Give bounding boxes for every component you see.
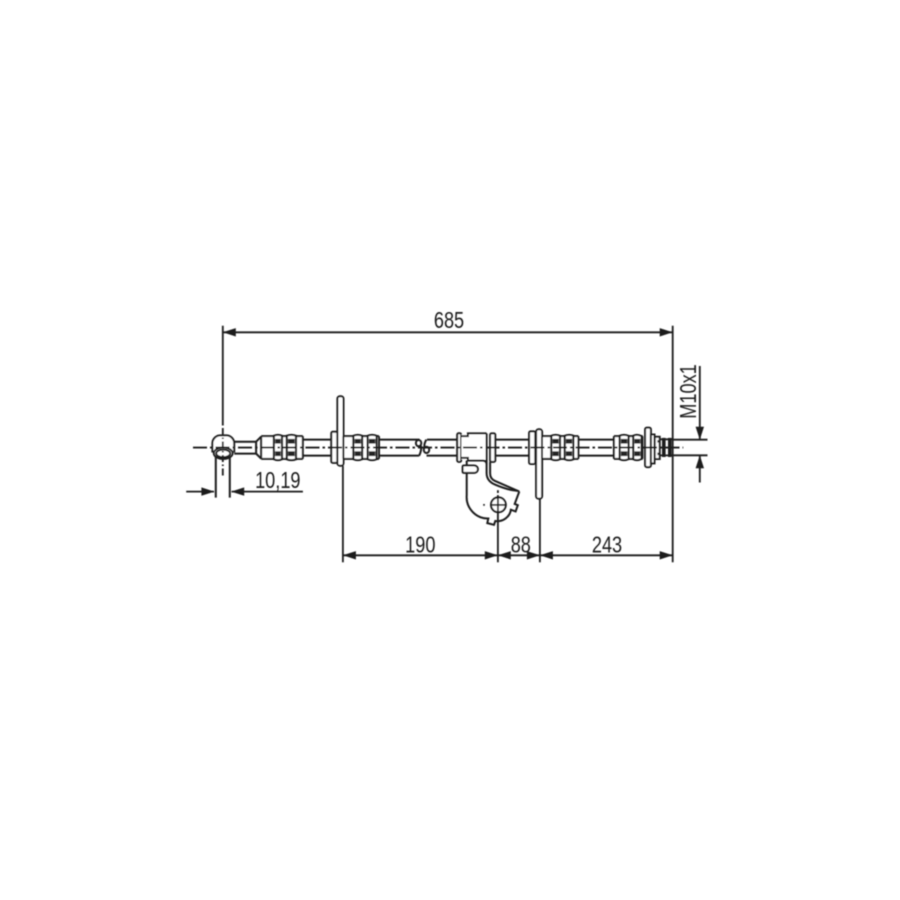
svg-text:190: 190 [405,532,435,558]
svg-text:685: 685 [434,308,464,334]
svg-text:M10x1: M10x1 [676,364,702,419]
svg-text:243: 243 [592,532,622,558]
svg-text:88: 88 [511,532,531,558]
svg-text:10,19: 10,19 [255,468,300,494]
